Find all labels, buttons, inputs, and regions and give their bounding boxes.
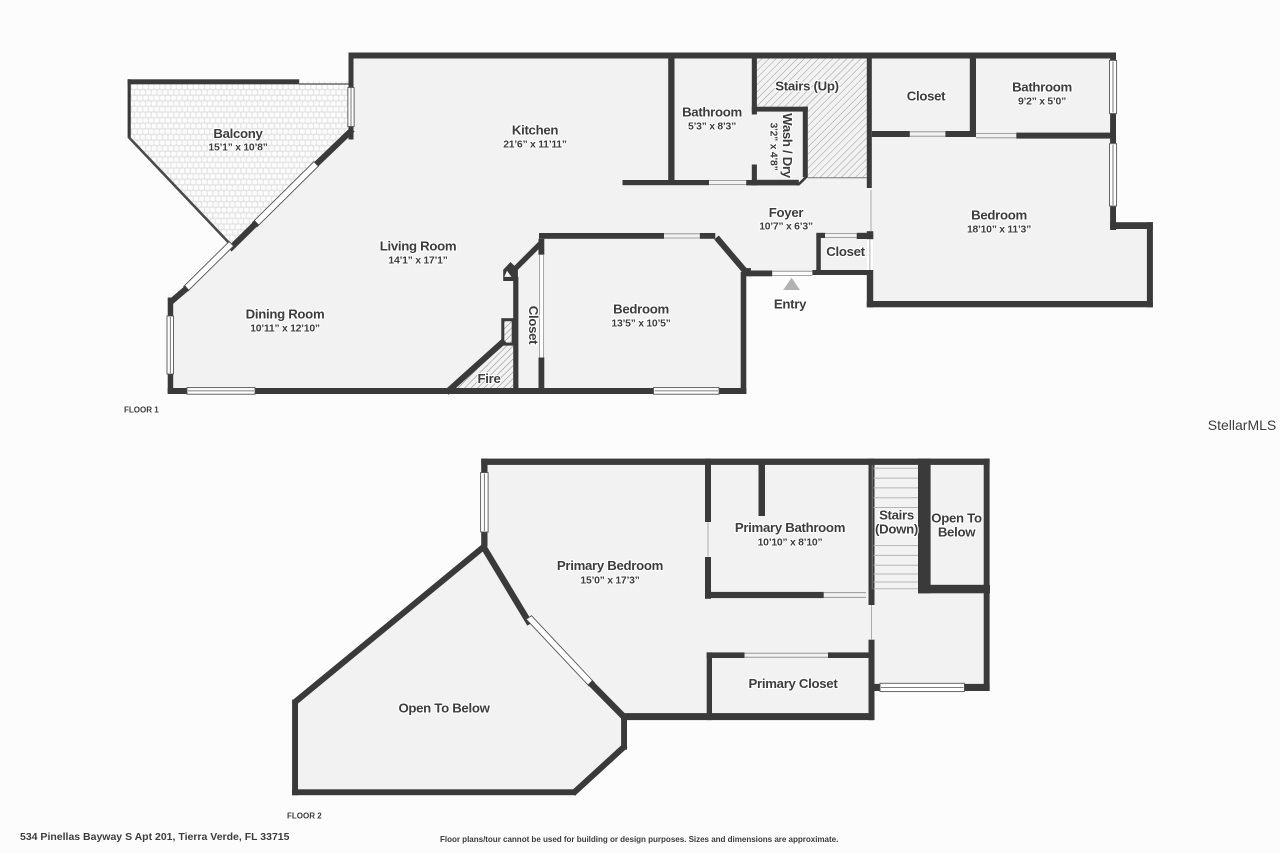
svg-text:Primary Closet: Primary Closet (749, 676, 839, 691)
svg-text:13’5” x 10’5”: 13’5” x 10’5” (611, 319, 670, 330)
svg-text:5’3” x 8’3”: 5’3” x 8’3” (688, 122, 736, 133)
svg-text:Stairs (Up): Stairs (Up) (775, 79, 838, 94)
svg-text:21’6” x 11’11”: 21’6” x 11’11” (503, 140, 567, 151)
svg-text:Balcony: Balcony (213, 126, 263, 141)
svg-text:3’2” x 4’8”: 3’2” x 4’8” (768, 122, 779, 170)
svg-text:Primary Bathroom: Primary Bathroom (735, 520, 845, 535)
svg-text:15’1” x 10’8”: 15’1” x 10’8” (208, 143, 267, 154)
svg-text:Closet: Closet (907, 89, 946, 104)
svg-text:18’10” x 11’3”: 18’10” x 11’3” (967, 225, 1031, 236)
svg-text:Closet: Closet (526, 306, 541, 345)
svg-text:Primary Bedroom: Primary Bedroom (557, 558, 663, 573)
svg-text:9’2” x 5’0”: 9’2” x 5’0” (1018, 97, 1066, 108)
svg-text:Fire: Fire (478, 371, 501, 386)
svg-text:14’1” x 17’1”: 14’1” x 17’1” (388, 256, 447, 267)
svg-text:Bedroom: Bedroom (971, 208, 1027, 223)
svg-text:FLOOR 2: FLOOR 2 (287, 812, 322, 821)
svg-text:StellarMLS: StellarMLS (1208, 417, 1276, 433)
svg-text:10’11” x 12’10”: 10’11” x 12’10” (250, 324, 320, 335)
svg-text:Dining Room: Dining Room (246, 307, 325, 322)
svg-text:534 Pinellas Bayway S Apt 201,: 534 Pinellas Bayway S Apt 201, Tierra Ve… (20, 831, 290, 843)
svg-text:Open To Below: Open To Below (398, 701, 490, 716)
svg-text:15’0” x 17’3”: 15’0” x 17’3” (580, 576, 639, 587)
svg-text:10’10” x 8’10”: 10’10” x 8’10” (758, 538, 823, 549)
svg-text:Floor plans/tour cannot be use: Floor plans/tour cannot be used for buil… (440, 835, 838, 844)
svg-text:Open To: Open To (931, 511, 982, 526)
svg-text:Entry: Entry (774, 297, 807, 312)
svg-text:FLOOR 1: FLOOR 1 (124, 406, 159, 415)
svg-text:Bathroom: Bathroom (1012, 80, 1072, 95)
svg-text:Foyer: Foyer (769, 205, 804, 220)
svg-text:Stairs: Stairs (879, 508, 914, 523)
svg-text:Living Room: Living Room (380, 239, 457, 254)
svg-text:10’7” x 6’3”: 10’7” x 6’3” (759, 222, 813, 233)
svg-text:Kitchen: Kitchen (512, 123, 559, 138)
svg-text:Wash / Dry: Wash / Dry (780, 113, 795, 179)
svg-text:Below: Below (938, 525, 976, 540)
svg-text:Bathroom: Bathroom (682, 105, 742, 120)
svg-text:Closet: Closet (826, 244, 865, 259)
svg-text:Bedroom: Bedroom (613, 302, 669, 317)
svg-text:(Down): (Down) (875, 522, 918, 537)
